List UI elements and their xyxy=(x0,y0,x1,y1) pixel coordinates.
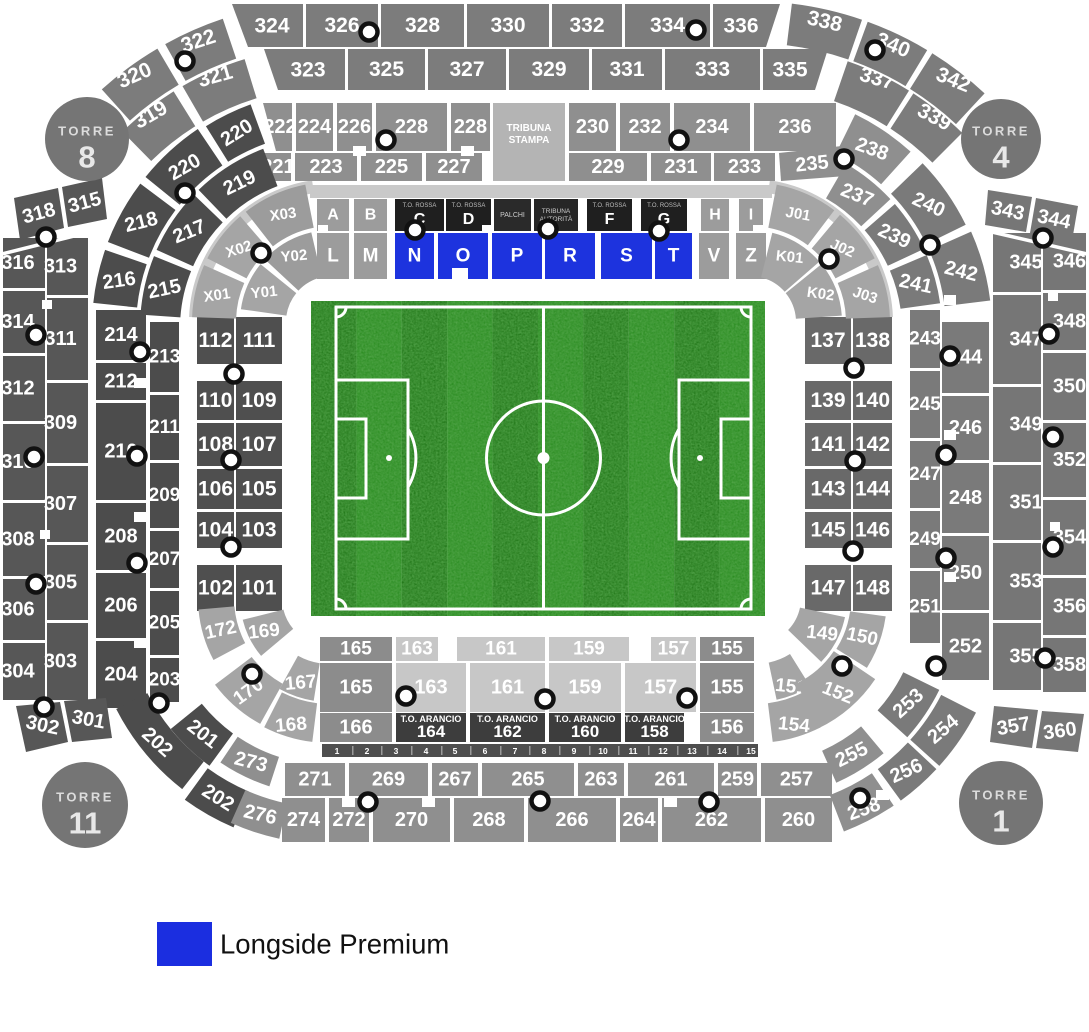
svg-text:233: 233 xyxy=(728,156,761,178)
svg-text:225: 225 xyxy=(375,156,408,178)
svg-text:349: 349 xyxy=(1009,414,1042,436)
svg-text:251: 251 xyxy=(909,597,941,618)
svg-text:264: 264 xyxy=(622,809,656,831)
svg-text:270: 270 xyxy=(395,809,428,831)
svg-text:223: 223 xyxy=(309,156,342,178)
svg-text:164: 164 xyxy=(417,722,446,741)
svg-text:352: 352 xyxy=(1053,449,1086,471)
svg-text:327: 327 xyxy=(449,58,484,81)
svg-text:207: 207 xyxy=(149,549,181,570)
svg-text:162: 162 xyxy=(493,722,521,741)
svg-text:330: 330 xyxy=(490,14,525,37)
svg-text:205: 205 xyxy=(149,613,181,634)
svg-text:304: 304 xyxy=(1,661,35,683)
svg-text:356: 356 xyxy=(1053,596,1086,618)
svg-text:S: S xyxy=(620,246,633,267)
svg-text:112: 112 xyxy=(199,329,233,352)
svg-text:329: 329 xyxy=(531,58,566,81)
svg-text:227: 227 xyxy=(437,156,470,178)
svg-text:D: D xyxy=(463,211,475,228)
svg-text:324: 324 xyxy=(254,15,289,38)
svg-text:235: 235 xyxy=(794,151,829,176)
svg-text:T: T xyxy=(668,246,680,267)
svg-text:230: 230 xyxy=(576,116,609,138)
svg-text:Longside Premium: Longside Premium xyxy=(220,929,449,960)
svg-text:272: 272 xyxy=(332,809,365,831)
svg-text:323: 323 xyxy=(290,59,325,82)
svg-text:331: 331 xyxy=(609,58,644,81)
svg-text:212: 212 xyxy=(104,371,137,393)
svg-text:103: 103 xyxy=(241,519,276,542)
svg-text:328: 328 xyxy=(405,14,440,37)
svg-text:H: H xyxy=(709,207,721,224)
svg-text:106: 106 xyxy=(198,478,233,501)
svg-text:4: 4 xyxy=(424,746,429,756)
svg-text:T.O. ROSSA: T.O. ROSSA xyxy=(593,203,627,209)
svg-text:166: 166 xyxy=(339,717,372,739)
svg-text:11: 11 xyxy=(629,746,638,756)
svg-text:307: 307 xyxy=(44,493,77,515)
svg-text:309: 309 xyxy=(44,412,77,434)
svg-text:K01: K01 xyxy=(775,247,804,267)
svg-text:F: F xyxy=(605,211,615,228)
svg-text:252: 252 xyxy=(949,636,982,658)
svg-text:140: 140 xyxy=(855,389,890,412)
svg-text:T.O. ROSSA: T.O. ROSSA xyxy=(452,203,486,209)
svg-text:Y02: Y02 xyxy=(280,247,308,266)
svg-text:111: 111 xyxy=(243,329,276,352)
svg-text:165: 165 xyxy=(340,639,372,660)
svg-text:139: 139 xyxy=(810,389,845,412)
svg-text:259: 259 xyxy=(721,769,754,791)
svg-text:A: A xyxy=(327,207,339,224)
svg-text:213: 213 xyxy=(149,347,181,368)
svg-text:154: 154 xyxy=(777,713,811,737)
svg-text:257: 257 xyxy=(780,769,813,791)
svg-text:211: 211 xyxy=(149,417,180,438)
svg-text:353: 353 xyxy=(1009,571,1042,593)
svg-text:149: 149 xyxy=(805,622,839,646)
svg-text:148: 148 xyxy=(855,577,890,600)
svg-text:109: 109 xyxy=(241,389,276,412)
svg-text:B: B xyxy=(365,207,377,224)
svg-text:308: 308 xyxy=(1,529,34,551)
svg-text:261: 261 xyxy=(654,769,687,791)
svg-text:147: 147 xyxy=(810,577,845,600)
svg-text:T.O. ROSSA: T.O. ROSSA xyxy=(647,203,681,209)
svg-text:V: V xyxy=(708,246,721,267)
svg-text:228: 228 xyxy=(395,116,428,138)
svg-text:Y01: Y01 xyxy=(250,283,278,303)
svg-text:214: 214 xyxy=(104,324,138,346)
svg-text:161: 161 xyxy=(485,639,517,660)
svg-text:263: 263 xyxy=(584,769,617,791)
svg-text:3: 3 xyxy=(394,746,399,756)
svg-text:245: 245 xyxy=(909,394,941,415)
svg-text:Z: Z xyxy=(745,246,757,267)
svg-text:STAMPA: STAMPA xyxy=(509,135,550,146)
svg-text:159: 159 xyxy=(568,677,601,699)
svg-text:305: 305 xyxy=(44,572,77,594)
svg-text:216: 216 xyxy=(101,268,137,294)
svg-text:12: 12 xyxy=(658,746,668,756)
svg-text:243: 243 xyxy=(909,329,941,350)
svg-text:TORRE: TORRE xyxy=(972,788,1030,803)
svg-text:160: 160 xyxy=(571,722,599,741)
svg-text:332: 332 xyxy=(569,14,604,37)
svg-text:145: 145 xyxy=(810,519,845,542)
svg-text:159: 159 xyxy=(573,639,605,660)
svg-text:226: 226 xyxy=(338,116,371,138)
svg-text:T.O. ROSSA: T.O. ROSSA xyxy=(403,203,437,209)
svg-text:313: 313 xyxy=(44,256,77,278)
svg-text:5: 5 xyxy=(453,746,458,756)
svg-text:247: 247 xyxy=(909,464,941,485)
svg-text:360: 360 xyxy=(1042,718,1078,744)
svg-text:229: 229 xyxy=(591,156,624,178)
svg-text:203: 203 xyxy=(149,670,181,691)
svg-text:9: 9 xyxy=(572,746,577,756)
svg-text:105: 105 xyxy=(241,478,276,501)
svg-text:10: 10 xyxy=(598,746,608,756)
svg-text:14: 14 xyxy=(717,746,727,756)
svg-text:8: 8 xyxy=(542,746,547,756)
svg-text:333: 333 xyxy=(695,58,730,81)
svg-text:O: O xyxy=(456,246,471,267)
svg-text:6: 6 xyxy=(483,746,488,756)
svg-text:143: 143 xyxy=(810,478,845,501)
svg-text:138: 138 xyxy=(855,329,890,352)
svg-text:TRIBUNA: TRIBUNA xyxy=(542,208,571,215)
svg-text:167: 167 xyxy=(284,671,317,695)
svg-text:M: M xyxy=(363,246,379,267)
svg-text:306: 306 xyxy=(1,599,34,621)
svg-text:163: 163 xyxy=(414,677,447,699)
svg-text:266: 266 xyxy=(555,809,588,831)
svg-text:155: 155 xyxy=(710,677,743,699)
svg-text:351: 351 xyxy=(1009,492,1042,514)
svg-text:4: 4 xyxy=(992,140,1010,175)
svg-text:248: 248 xyxy=(949,487,982,509)
svg-text:163: 163 xyxy=(401,639,433,660)
svg-text:110: 110 xyxy=(199,389,233,412)
svg-text:TORRE: TORRE xyxy=(56,790,114,805)
svg-text:325: 325 xyxy=(369,58,404,81)
svg-text:311: 311 xyxy=(44,328,76,350)
svg-text:156: 156 xyxy=(710,717,743,739)
svg-text:TORRE: TORRE xyxy=(972,124,1030,139)
svg-text:236: 236 xyxy=(778,116,811,138)
svg-text:336: 336 xyxy=(723,15,758,38)
svg-text:I: I xyxy=(749,207,753,224)
svg-text:2: 2 xyxy=(365,746,370,756)
svg-text:265: 265 xyxy=(511,769,544,791)
svg-text:1: 1 xyxy=(335,746,340,756)
svg-text:13: 13 xyxy=(687,746,697,756)
svg-text:165: 165 xyxy=(339,677,372,699)
svg-text:168: 168 xyxy=(274,713,307,737)
svg-text:222: 222 xyxy=(263,116,296,138)
svg-text:209: 209 xyxy=(149,485,181,506)
svg-text:157: 157 xyxy=(658,639,690,660)
svg-text:R: R xyxy=(563,246,577,267)
svg-text:1: 1 xyxy=(992,804,1009,839)
svg-text:228: 228 xyxy=(454,116,487,138)
svg-text:345: 345 xyxy=(1009,252,1042,274)
svg-text:N: N xyxy=(408,246,422,267)
svg-text:269: 269 xyxy=(372,769,405,791)
svg-text:146: 146 xyxy=(855,519,890,542)
svg-text:267: 267 xyxy=(438,769,471,791)
svg-text:137: 137 xyxy=(810,329,845,352)
svg-text:8: 8 xyxy=(78,140,95,175)
svg-text:157: 157 xyxy=(644,677,677,699)
svg-text:334: 334 xyxy=(650,14,685,37)
svg-text:11: 11 xyxy=(69,806,102,841)
svg-text:335: 335 xyxy=(772,59,807,82)
svg-text:206: 206 xyxy=(104,595,137,617)
svg-text:169: 169 xyxy=(247,620,281,644)
svg-text:161: 161 xyxy=(491,677,524,699)
svg-text:303: 303 xyxy=(44,651,77,673)
svg-text:224: 224 xyxy=(298,116,332,138)
svg-text:15: 15 xyxy=(746,746,756,756)
svg-text:155: 155 xyxy=(711,639,743,660)
svg-text:234: 234 xyxy=(695,116,729,138)
svg-text:260: 260 xyxy=(782,809,815,831)
svg-text:158: 158 xyxy=(640,722,668,741)
svg-text:347: 347 xyxy=(1009,329,1042,351)
svg-text:249: 249 xyxy=(909,529,941,550)
svg-text:PALCHI: PALCHI xyxy=(500,212,525,219)
svg-text:358: 358 xyxy=(1053,654,1086,676)
svg-text:141: 141 xyxy=(810,433,845,456)
svg-text:101: 101 xyxy=(241,577,276,600)
svg-text:231: 231 xyxy=(664,156,697,178)
svg-text:208: 208 xyxy=(104,526,137,548)
svg-text:350: 350 xyxy=(1053,376,1086,398)
svg-text:271: 271 xyxy=(298,769,331,791)
svg-text:232: 232 xyxy=(628,116,661,138)
svg-text:204: 204 xyxy=(104,664,138,686)
svg-text:TORRE: TORRE xyxy=(58,124,116,139)
svg-text:316: 316 xyxy=(1,252,34,274)
svg-text:7: 7 xyxy=(513,746,518,756)
svg-text:L: L xyxy=(327,246,339,267)
svg-text:102: 102 xyxy=(198,577,233,600)
svg-text:312: 312 xyxy=(1,378,34,400)
svg-text:TRIBUNA: TRIBUNA xyxy=(507,123,552,134)
svg-text:144: 144 xyxy=(855,478,890,501)
svg-text:107: 107 xyxy=(241,433,276,456)
svg-text:268: 268 xyxy=(472,809,505,831)
svg-text:274: 274 xyxy=(287,809,321,831)
svg-text:P: P xyxy=(511,246,524,267)
svg-text:326: 326 xyxy=(324,14,359,37)
